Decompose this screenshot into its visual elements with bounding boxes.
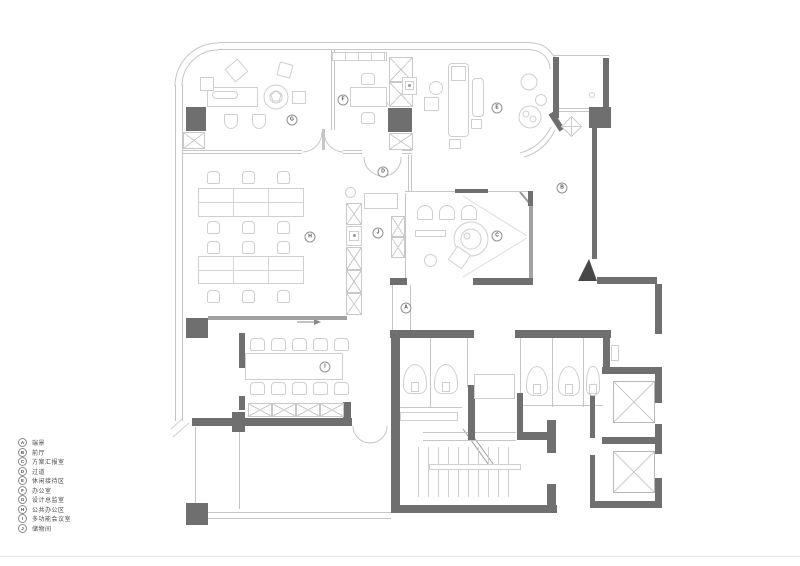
stall-partition xyxy=(430,338,431,408)
task-chair xyxy=(207,221,220,234)
wall-segment xyxy=(592,128,597,259)
legend-key-icon: E xyxy=(18,476,27,485)
meeting-chair xyxy=(250,382,265,395)
side-table xyxy=(292,91,306,104)
column xyxy=(232,412,245,432)
storage-shelf xyxy=(346,270,362,293)
wall-segment xyxy=(603,58,609,107)
meeting-chair xyxy=(250,338,265,351)
terrace-edge xyxy=(195,427,196,507)
guest-chair xyxy=(224,114,238,129)
column xyxy=(186,318,208,338)
wall-segment xyxy=(515,330,611,338)
partition-wall xyxy=(402,153,412,154)
room-marker-a: A xyxy=(401,303,412,314)
meeting-chair xyxy=(313,338,328,351)
legend-key-icon: C xyxy=(18,457,27,466)
partition-wall xyxy=(411,155,412,191)
wall-segment xyxy=(208,316,347,320)
stool xyxy=(424,254,437,267)
partition-wall xyxy=(402,150,412,151)
wall-segment xyxy=(528,191,533,206)
meeting-chair xyxy=(292,382,307,395)
wc-cistern xyxy=(442,382,450,392)
low-cabinet xyxy=(248,403,272,417)
stair-landing-line xyxy=(423,440,516,441)
stall-partition xyxy=(583,338,584,407)
partition-wall xyxy=(183,150,302,151)
room-marker-e: E xyxy=(492,103,503,114)
counter-equipment xyxy=(451,66,466,81)
meeting-chair xyxy=(313,382,328,395)
legend-item: D 过道 xyxy=(18,467,71,477)
stall-front xyxy=(400,407,462,408)
legend-item: B 前厅 xyxy=(18,448,71,458)
legend-label: 设计总监室 xyxy=(32,495,65,504)
chair xyxy=(361,73,375,85)
legend-key-icon: J xyxy=(18,524,27,533)
legend-key-icon: G xyxy=(18,495,27,504)
task-chair xyxy=(277,241,290,254)
partition-wall xyxy=(559,108,590,109)
meeting-chair xyxy=(271,338,286,351)
partition-wall xyxy=(554,55,609,56)
terrace-edge xyxy=(196,518,391,519)
lounge-chair xyxy=(225,59,249,83)
partition-wall xyxy=(405,193,406,279)
room-marker-h: H xyxy=(305,232,316,243)
room-marker-c: C xyxy=(492,231,503,242)
console-table xyxy=(415,230,446,237)
task-chair xyxy=(277,221,290,234)
wall-segment xyxy=(597,277,657,284)
terrace-edge xyxy=(196,512,391,513)
wall-segment xyxy=(553,57,559,118)
room-marker-f: F xyxy=(338,95,349,106)
low-cabinet xyxy=(272,403,296,417)
wall-segment xyxy=(602,437,655,444)
task-chair xyxy=(277,290,290,303)
bench-divider xyxy=(233,188,234,217)
legend-key-icon: H xyxy=(18,505,27,514)
legend-label: 方案汇报室 xyxy=(32,457,65,466)
wall-segment xyxy=(590,501,662,508)
elevator-cab xyxy=(613,381,655,423)
chair xyxy=(361,112,375,124)
stall-partition xyxy=(552,338,553,407)
task-chair xyxy=(242,290,255,303)
task-chair xyxy=(207,290,220,303)
legend-key-icon: B xyxy=(18,448,27,457)
sink-counter xyxy=(474,374,515,399)
workstation-bench xyxy=(198,188,304,217)
legend-label: 办公室 xyxy=(32,486,52,495)
wc-cistern xyxy=(411,382,419,392)
wc-cistern xyxy=(565,384,573,394)
task-chair xyxy=(242,171,255,184)
task-chair xyxy=(207,241,220,254)
legend-key-icon: F xyxy=(18,486,27,495)
partition-wall xyxy=(334,50,335,130)
bench-divider xyxy=(268,256,269,284)
armchair xyxy=(439,205,455,220)
stool xyxy=(471,119,482,129)
low-cabinet xyxy=(296,403,320,417)
bench-divider xyxy=(268,188,269,217)
floor-plan-canvas: A B C D E F G H I J A 端景 B 前厅 C 方案汇报室 D … xyxy=(0,0,800,566)
wall-segment xyxy=(455,189,488,193)
task-chair xyxy=(242,241,255,254)
storage-shelf xyxy=(346,293,362,315)
wc-cistern xyxy=(589,384,597,394)
wc-cistern xyxy=(533,384,541,394)
wall-segment xyxy=(391,330,400,513)
wall-segment xyxy=(343,402,351,420)
exterior-wall-line xyxy=(218,42,531,43)
wall-segment xyxy=(529,206,533,278)
bench-seat xyxy=(472,78,484,117)
meeting-chair xyxy=(271,382,286,395)
closet-shelf xyxy=(389,133,413,150)
legend-label: 休闲接待区 xyxy=(32,476,65,485)
door-post xyxy=(322,129,325,150)
legend-item: C 方案汇报室 xyxy=(18,457,71,467)
wall-segment xyxy=(192,418,352,426)
wall-segment xyxy=(517,393,523,434)
column xyxy=(388,108,412,132)
partition-wall xyxy=(343,153,362,154)
legend: A 端景 B 前厅 C 方案汇报室 D 过道 E 休闲接待区 F 办公室 G 设… xyxy=(18,438,71,533)
meeting-chair xyxy=(334,338,349,351)
room-marker-d: D xyxy=(378,167,389,178)
low-cabinet xyxy=(320,403,344,417)
wall-segment xyxy=(239,396,245,410)
lounge-chair xyxy=(276,61,293,78)
legend-label: 公共办公区 xyxy=(32,505,65,514)
legend-item: G 设计总监室 xyxy=(18,495,71,505)
wall-segment xyxy=(655,424,662,454)
partition-wall xyxy=(343,150,362,151)
wash-counter xyxy=(364,193,398,209)
partition-wall xyxy=(183,153,302,154)
terrace-edge xyxy=(239,427,240,509)
side-table xyxy=(200,77,214,91)
faucet-dot xyxy=(408,84,411,87)
legend-item: H 公共办公区 xyxy=(18,505,71,515)
room-marker-j: J xyxy=(373,228,384,239)
legend-label: 过道 xyxy=(32,467,45,476)
lounge-chair xyxy=(448,246,472,270)
wall-segment xyxy=(655,284,662,334)
legend-label: 前厅 xyxy=(32,448,45,457)
partition-wall xyxy=(559,111,590,112)
round-chair xyxy=(429,81,443,95)
wall-segment xyxy=(602,367,660,374)
legend-label: 储物间 xyxy=(32,524,52,533)
wall-segment xyxy=(603,338,610,368)
column xyxy=(589,107,611,128)
sheet-edge-line xyxy=(0,556,800,557)
legend-label: 多功能会议室 xyxy=(32,514,71,523)
stool xyxy=(449,139,461,149)
legend-key-icon: A xyxy=(18,438,27,447)
coffee-table xyxy=(424,97,439,111)
wall-segment xyxy=(390,330,474,338)
wall-segment xyxy=(400,505,557,513)
room-marker-b: B xyxy=(557,183,568,194)
wall-segment xyxy=(390,278,407,285)
storage-shelf xyxy=(391,216,405,237)
legend-key-icon: D xyxy=(18,467,27,476)
stall-partition xyxy=(467,338,468,387)
storage-shelf xyxy=(346,247,362,270)
meeting-chair xyxy=(334,382,349,395)
legend-item: A 端景 xyxy=(18,438,71,448)
meeting-chair xyxy=(292,338,307,351)
storage-shelf xyxy=(391,237,405,258)
room-marker-g: G xyxy=(287,115,298,126)
elevator-cab xyxy=(613,451,655,493)
window-mullion xyxy=(183,132,205,149)
office-desk xyxy=(350,87,387,107)
exterior-wall-line xyxy=(175,85,176,421)
legend-label: 端景 xyxy=(32,438,45,447)
exterior-wall-line xyxy=(218,49,531,50)
equipment-unit xyxy=(561,116,582,137)
task-chair xyxy=(277,171,290,184)
armchair xyxy=(417,205,433,220)
storage-shelf xyxy=(346,203,362,225)
wall-segment xyxy=(473,278,533,285)
desk-pad xyxy=(212,91,238,99)
armchair xyxy=(461,205,477,220)
legend-item: E 休闲接待区 xyxy=(18,476,71,486)
wall-segment xyxy=(547,484,556,508)
bench-divider xyxy=(233,256,234,284)
stair-handrail xyxy=(429,464,521,470)
partition-wall xyxy=(331,50,332,130)
faucet-dot xyxy=(353,234,356,237)
legend-key-icon: I xyxy=(18,514,27,523)
stair-treads xyxy=(418,447,517,497)
partition-wall xyxy=(408,155,409,191)
corridor-wall xyxy=(392,285,393,331)
room-marker-i: I xyxy=(320,362,331,373)
legend-item: F 办公室 xyxy=(18,486,71,496)
column xyxy=(186,503,208,525)
vanity-counter xyxy=(400,412,458,421)
workstation-bench xyxy=(198,256,304,284)
legend-item: I 多功能会议室 xyxy=(18,514,71,524)
water-dispenser xyxy=(345,187,356,198)
guest-chair xyxy=(252,114,266,129)
wall-segment xyxy=(655,367,662,403)
legend-item: J 储物间 xyxy=(18,524,71,534)
task-chair xyxy=(242,221,255,234)
wall-segment xyxy=(655,478,662,508)
cabinet xyxy=(332,52,387,61)
column xyxy=(186,107,206,131)
door-leaf xyxy=(611,345,619,361)
task-chair xyxy=(207,171,220,184)
